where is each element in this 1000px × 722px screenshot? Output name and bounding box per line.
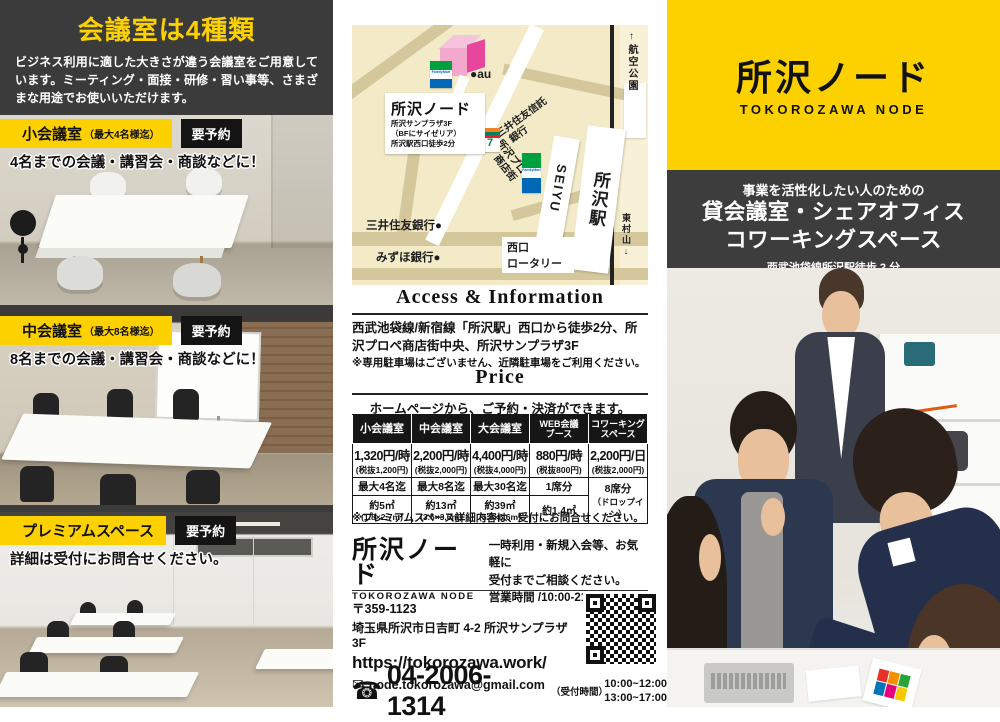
phone-row: ☎ 04-2006-1314 （受付時間） 10:00~12:00 13:00~…	[352, 660, 667, 722]
phone-icon: ☎	[352, 677, 382, 706]
callout-line: （BFにサイゼリア）	[391, 129, 479, 139]
divider	[352, 590, 648, 591]
familymart-label: FamilyMart	[430, 70, 452, 78]
room-small-caption: 4名までの会議・講習会・商談などに！	[10, 151, 265, 172]
au-shop-label: ●au	[470, 67, 491, 81]
left-title: 会議室は4種類	[0, 0, 333, 47]
room-name: プレミアムスペース	[22, 520, 154, 541]
familymart-name-bar: FamilyMart	[522, 168, 541, 178]
flyer-mosaic	[873, 668, 910, 701]
familymart-icon: FamilyMart	[522, 153, 541, 193]
access-body: 西武池袋線/新宿線「所沢駅」西口から徒歩2分、所沢プロペ商店街中央、所沢サンプラ…	[352, 319, 648, 371]
higashimurayama-label: 東村山↓	[620, 213, 633, 258]
col-header: WEB会議ブース	[530, 415, 589, 444]
rotary-line1: 西口	[507, 239, 569, 255]
price-cell: 1,320円/時(税抜1,200円)	[353, 444, 412, 478]
capacity-row: 最大4名迄 最大8名迄 最大30名迄 1席分 8席分（ドロップイン）	[353, 478, 648, 496]
seiyu-label: SEIYU	[546, 164, 569, 215]
tokorozawa-station-building: 所沢駅	[570, 125, 625, 274]
callout-line: 所沢サンプラザ3F	[391, 119, 479, 129]
west-exit-rotary-box: 西口 ロータリー	[502, 237, 574, 273]
qr-finder	[638, 594, 656, 612]
table	[29, 637, 183, 653]
header-label: WEB会議	[530, 419, 588, 429]
header-label: 小会議室	[353, 423, 411, 436]
price-cell: 880円/時(税抜800円)	[530, 444, 589, 478]
cover-logo-area: 所沢ノード TOKOROZAWA NODE	[667, 0, 1000, 170]
price-value: 2,200円/時	[412, 445, 470, 464]
capacity-value: 最大4名迄	[353, 479, 411, 494]
postal-code: 〒359-1123	[352, 598, 582, 617]
premium-caption: 詳細は受付にお問合せください。	[10, 548, 228, 569]
premium-space-block: プレミアムスペース 要予約 詳細は受付にお問合せください。	[0, 512, 333, 707]
capacity-value: 最大30名迄	[471, 479, 529, 494]
station-label: 所沢駅	[582, 170, 614, 230]
price-value: 1,320円/時	[353, 445, 411, 464]
capacity-cell: 最大8名迄	[412, 478, 471, 496]
fan-stand	[21, 237, 24, 263]
capacity-value: 1席分	[530, 479, 588, 494]
reservation-badge: 要予約	[181, 316, 242, 345]
capacity-value: 最大8名迄	[412, 479, 470, 494]
capacity-cell: 最大4名迄	[353, 478, 412, 496]
familymart-green-block	[522, 153, 541, 168]
middle-panel: FamilyMart ●au 所沢ノード 所沢サンプラザ3F （BFにサイゼリア…	[333, 0, 667, 707]
left-description: ビジネス利用に適した大きさが違う会議室をご用意しています。ミーティング・面接・研…	[0, 47, 333, 107]
room-medium-banner: 中会議室 （最大8名様迄）	[0, 316, 172, 345]
capacity-cell: 最大30名迄	[471, 478, 530, 496]
chair	[173, 263, 221, 297]
header-label: スペース	[589, 429, 647, 439]
room-medium-block: 中会議室 （最大8名様迄） 要予約 8名までの会議・講習会・商談などに！	[0, 312, 333, 505]
capacity-value: 8席分	[589, 481, 647, 496]
col-header: 小会議室	[353, 415, 412, 444]
wall-shade	[271, 115, 333, 248]
brochure: 会議室は4種類 ビジネス利用に適した大きさが違う会議室をご用意しています。ミーテ…	[0, 0, 1000, 707]
table	[255, 649, 333, 669]
mizuho-bank-label: みずほ銀行●	[376, 249, 440, 265]
room-capacity-note: （最大8名様迄）	[84, 323, 160, 338]
room-medium-caption: 8名までの会議・講習会・商談などに！	[10, 348, 265, 369]
price-table: 小会議室 中会議室 大会議室 WEB会議ブース コワーキングスペース 1,320…	[352, 414, 648, 524]
room-medium-banner-row: 中会議室 （最大8名様迄） 要予約	[0, 316, 242, 345]
photo-business-meeting	[667, 268, 1000, 707]
price-value: 880円/時	[530, 445, 588, 464]
chair	[57, 256, 103, 290]
logo-english: TOKOROZAWA NODE	[667, 102, 1000, 117]
headline-1: 貸会議室・シェアオフィス	[667, 199, 1000, 227]
face	[699, 534, 721, 580]
chair	[100, 474, 136, 505]
chair	[186, 470, 220, 504]
consult-line2: 受付までご相談ください。	[489, 573, 648, 590]
price-value: 2,200円/日	[589, 445, 647, 464]
reception-label: （受付時間）	[551, 684, 604, 698]
col-header: 中会議室	[412, 415, 471, 444]
price-note: ※プレミアムスペース詳細内容は、受付にお問合せください。	[352, 510, 648, 525]
seiyu-building: SEIYU	[536, 136, 580, 243]
familymart-blue-block	[522, 178, 541, 193]
tax-value: (税抜2,000円)	[412, 464, 470, 476]
consult-line1: 一時利用・新規入会等、お気軽に	[489, 538, 648, 573]
price-cell: 2,200円/日(税抜2,000円)	[589, 444, 648, 478]
tax-value: (税抜800円)	[530, 464, 588, 476]
airport-park-label: ↑航空公園	[624, 31, 639, 92]
access-text: 西武池袋線/新宿線「所沢駅」西口から徒歩2分、所沢プロペ商店街中央、所沢サンプラ…	[352, 319, 648, 355]
price-value: 4,400円/時	[471, 445, 529, 464]
access-map: FamilyMart ●au 所沢ノード 所沢サンプラザ3F （BFにサイゼリア…	[352, 25, 648, 285]
separator	[0, 505, 333, 512]
table	[38, 195, 248, 248]
header-label: ブース	[530, 429, 588, 439]
header-label: コワーキング	[589, 419, 647, 429]
chair	[173, 389, 199, 421]
wall-panel-line	[253, 535, 254, 625]
laptop	[704, 663, 794, 703]
qr-finder	[586, 594, 604, 612]
table	[0, 672, 199, 697]
room-capacity-note: （最大4名様迄）	[84, 126, 160, 141]
col-header: コワーキングスペース	[589, 415, 648, 444]
price-value-row: 1,320円/時(税抜1,200円) 2,200円/時(税抜2,000円) 4,…	[353, 444, 648, 478]
table	[1, 414, 272, 469]
mosaic-tile	[898, 674, 911, 689]
street-address: 埼玉県所沢市日吉町 4-2 所沢サンプラザ 3F	[352, 619, 582, 650]
tagline: 事業を活性化したい人のための	[667, 170, 1000, 199]
paper-sheet	[805, 665, 861, 701]
reservation-badge: 要予約	[175, 516, 236, 545]
access-title: Access & Information	[352, 286, 648, 315]
right-panel: 所沢ノード TOKOROZAWA NODE 事業を活性化したい人のための 貸会議…	[667, 0, 1000, 707]
room-small-banner: 小会議室 （最大4名様迄）	[0, 119, 172, 148]
familymart-green-stripe	[430, 61, 452, 70]
left-header: 会議室は4種類 ビジネス利用に適した大きさが違う会議室をご用意しています。ミーテ…	[0, 0, 333, 115]
col-header: 大会議室	[471, 415, 530, 444]
logo-japanese: 所沢ノード	[352, 538, 477, 588]
chair	[186, 168, 222, 196]
tax-value: (税抜1,200円)	[353, 464, 411, 476]
mosaic-tile	[894, 687, 907, 702]
price-cell: 2,200円/時(税抜2,000円)	[412, 444, 471, 478]
familymart-blue-stripe	[430, 79, 452, 88]
cover-headline-band: 事業を活性化したい人のための 貸会議室・シェアオフィス コワーキングスペース 西…	[667, 170, 1000, 268]
reception-hours-2: 13:00~17:00	[604, 691, 667, 705]
smbc-bank-label: 三井住友銀行●	[366, 217, 442, 233]
qr-code	[586, 594, 656, 664]
map-callout: 所沢ノード 所沢サンプラザ3F （BFにサイゼリア） 所沢駅西口徒歩2分	[385, 93, 485, 154]
shelf-item-teal	[904, 342, 935, 366]
room-name: 中会議室	[22, 320, 82, 341]
price-title: Price	[352, 366, 648, 395]
middle-logo: 所沢ノード TOKOROZAWA NODE	[352, 538, 477, 602]
reception-hours-1: 10:00~12:00	[604, 677, 667, 691]
tax-value: (税抜2,000円)	[589, 464, 647, 476]
laptop-keyboard	[711, 673, 787, 689]
capacity-cell: 1席分	[530, 478, 589, 496]
headline-2: コワーキングスペース	[667, 227, 1000, 255]
separator	[0, 305, 333, 312]
room-small-block: 小会議室 （最大4名様迄） 要予約 4名までの会議・講習会・商談などに！	[0, 115, 333, 305]
rotary-line2: ロータリー	[507, 255, 569, 271]
phone-number: 04-2006-1314	[387, 660, 544, 722]
premium-banner: プレミアムスペース	[0, 516, 166, 545]
chair	[20, 466, 54, 502]
callout-line: 所沢駅西口徒歩2分	[391, 139, 479, 149]
reservation-badge: 要予約	[181, 119, 242, 148]
left-panel: 会議室は4種類 ビジネス利用に適した大きさが違う会議室をご用意しています。ミーテ…	[0, 0, 333, 707]
price-cell: 4,400円/時(税抜4,000円)	[471, 444, 530, 478]
tax-value: (税抜4,000円)	[471, 464, 529, 476]
price-header-row: 小会議室 中会議室 大会議室 WEB会議ブース コワーキングスペース	[353, 415, 648, 444]
hand	[761, 498, 785, 536]
callout-title: 所沢ノード	[391, 98, 479, 119]
header-label: 中会議室	[412, 423, 470, 436]
room-name: 小会議室	[22, 123, 82, 144]
premium-banner-row: プレミアムスペース 要予約	[0, 516, 236, 545]
table-edge	[35, 248, 225, 258]
familymart-icon: FamilyMart	[430, 61, 452, 88]
room-small-banner-row: 小会議室 （最大4名様迄） 要予約	[0, 119, 242, 148]
logo-japanese: 所沢ノード	[667, 0, 1000, 96]
electric-fan	[10, 210, 36, 236]
header-label: 大会議室	[471, 423, 529, 436]
